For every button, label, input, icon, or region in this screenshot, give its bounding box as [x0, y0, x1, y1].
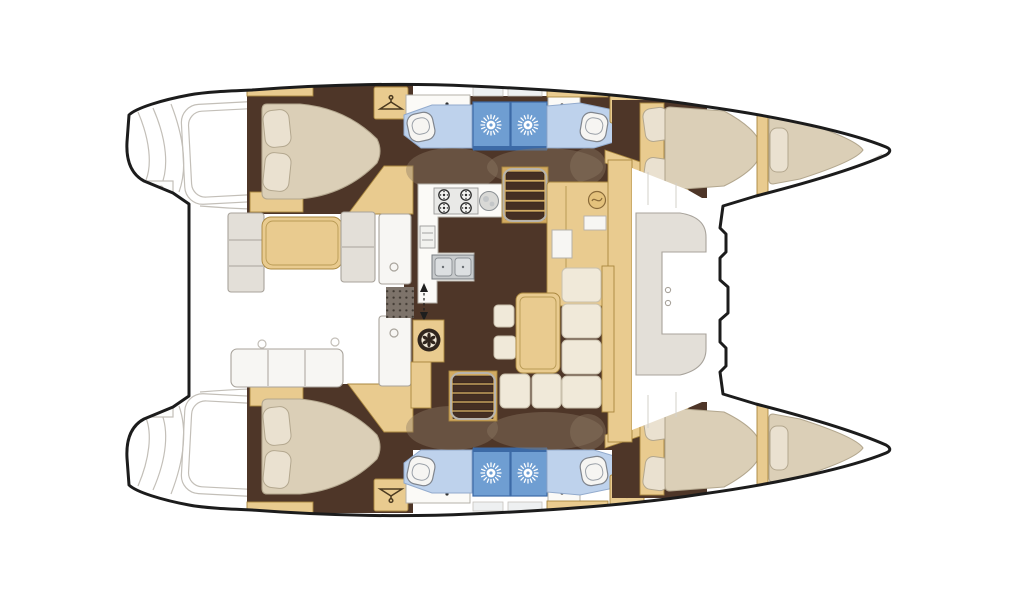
nav-seat [552, 230, 572, 258]
cockpit-bench-port [228, 213, 264, 292]
sink-detail [483, 196, 489, 202]
settee-cushion [562, 304, 601, 338]
fridge-icon [420, 226, 435, 248]
sliding-door-port-leaf [379, 214, 411, 284]
stool-cushion [494, 336, 516, 359]
cockpit-locker [411, 362, 431, 408]
catamaran-floorplan-diagram [0, 0, 1024, 600]
settee-cushion [562, 376, 601, 408]
cockpit-bench-aft [231, 349, 343, 387]
cockpit-table [262, 217, 342, 269]
sliding-door-starboard-leaf [379, 316, 411, 386]
settee-cushion [500, 374, 530, 408]
entry-mat-dots [386, 287, 414, 318]
helm-wheel-icon [418, 329, 441, 352]
stairs-port [502, 167, 548, 223]
settee-cushion [532, 374, 561, 408]
settee-cushion [562, 268, 601, 302]
boat-floorplan-canvas [0, 0, 1024, 600]
settee-base [602, 266, 614, 412]
locker-front [584, 216, 606, 230]
stairs-starboard [449, 371, 497, 421]
stool-cushion [494, 305, 514, 327]
sink-detail [490, 202, 495, 207]
round-sink-icon [480, 192, 499, 211]
salon-table [516, 293, 560, 373]
settee-cushion [562, 340, 601, 374]
